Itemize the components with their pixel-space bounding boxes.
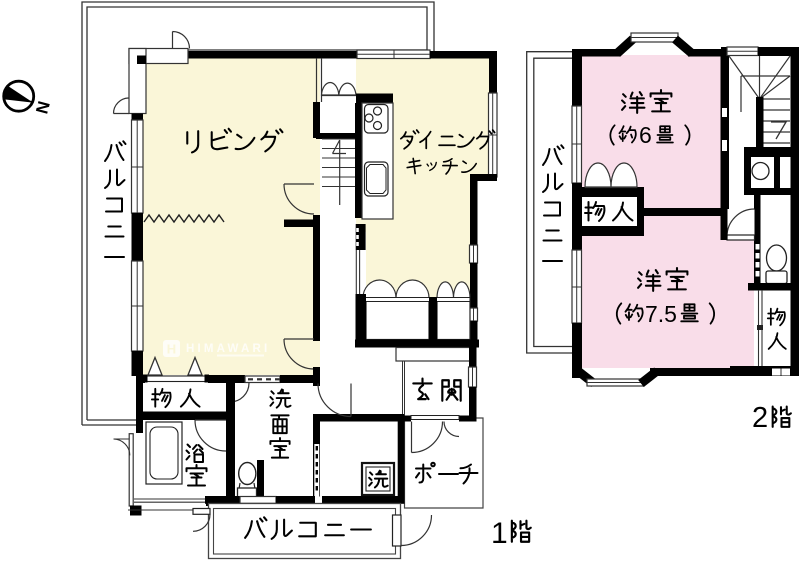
svg-text:H: H	[167, 342, 176, 357]
svg-text:7.5: 7.5	[645, 301, 677, 327]
svg-text:2: 2	[752, 402, 768, 434]
svg-text:6: 6	[639, 122, 652, 148]
svg-text:1: 1	[491, 517, 508, 550]
svg-text:HIMAWARI: HIMAWARI	[186, 343, 270, 355]
